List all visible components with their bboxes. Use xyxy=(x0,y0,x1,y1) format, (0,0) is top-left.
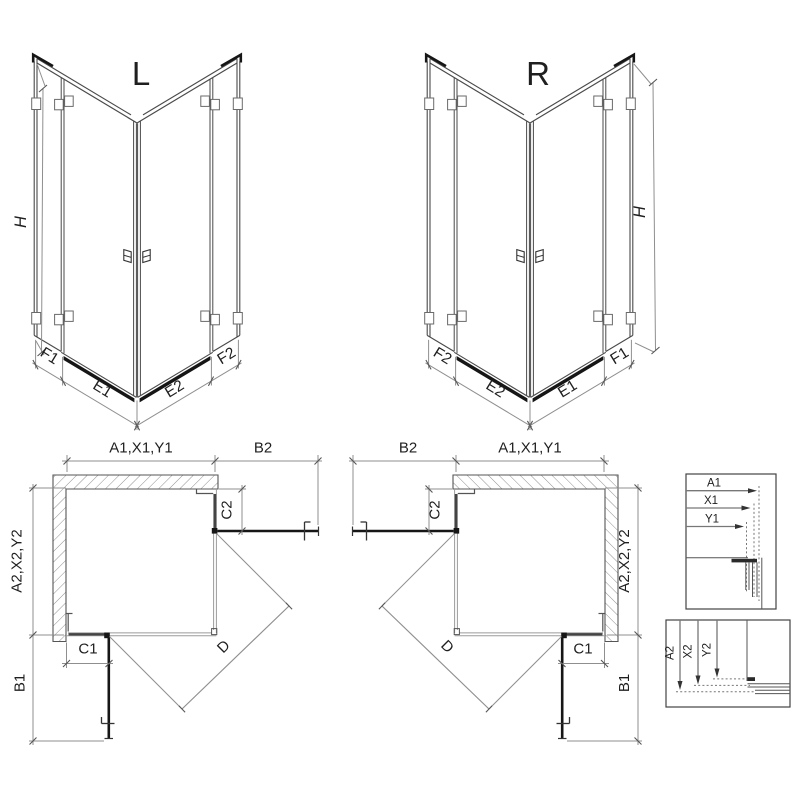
detail-box-width: A1 X1 Y1 xyxy=(686,474,776,609)
label-width-top: A1,X1,Y1 xyxy=(109,440,172,457)
view-title-right: R xyxy=(526,55,550,92)
label-y1: Y1 xyxy=(705,513,719,525)
plan-view-left: A1,X1,Y1 B2 C2 A2,X2,Y2 C1 B1 D xyxy=(9,440,323,746)
profile-bar xyxy=(748,677,756,681)
height-dim-line xyxy=(42,88,44,352)
label-fixed-front: C1 xyxy=(78,641,97,658)
arrow-down-icon xyxy=(678,681,683,690)
detail-frame xyxy=(686,474,776,609)
label-door-open-front: B1 xyxy=(12,674,29,692)
label-x1: X1 xyxy=(704,495,718,507)
label-door-left: E2 xyxy=(483,377,508,401)
label-door-open-side: B2 xyxy=(399,440,417,457)
label-door-open-side: B2 xyxy=(254,440,272,457)
label-fixed-side: C2 xyxy=(427,500,444,519)
label-fixed-side: C2 xyxy=(219,500,236,519)
label-diagonal: D xyxy=(214,637,234,657)
label-x2: X2 xyxy=(683,644,695,658)
label-door-open-front: B1 xyxy=(616,674,633,692)
detail-box-depth: A2 X2 Y2 xyxy=(665,620,791,707)
arrow-down-icon xyxy=(696,676,701,685)
label-depth-side: A2,X2,Y2 xyxy=(9,529,26,592)
label-panel-left: F1 xyxy=(37,344,61,368)
height-dim-line xyxy=(653,82,656,350)
label-height: H xyxy=(12,216,30,228)
iso-view-right: R H F2 E2 E1 F1 xyxy=(425,55,660,431)
label-depth-side: A2,X2,Y2 xyxy=(616,529,633,592)
iso-view-left: L H F1 E1 E2 F2 xyxy=(12,55,242,431)
label-width-top: A1,X1,Y1 xyxy=(498,440,561,457)
label-panel-left: F2 xyxy=(430,344,454,368)
plan-view-right: B2 A1,X1,Y1 C2 A2,X2,Y2 C1 B1 D xyxy=(349,440,642,746)
arrow-down-icon xyxy=(715,669,720,678)
label-fixed-front: C1 xyxy=(573,641,592,658)
label-height: H xyxy=(631,206,649,218)
label-door-left: E1 xyxy=(90,377,115,401)
technical-drawing: L H F1 E1 E2 F2 R H F2 E2 E1 F1 A1,X1,Y1… xyxy=(0,0,800,800)
label-a1: A1 xyxy=(707,478,721,490)
arrow-right-icon xyxy=(742,506,751,511)
profile-bar xyxy=(732,559,758,563)
label-a2: A2 xyxy=(665,646,677,660)
arrow-right-icon xyxy=(748,488,757,493)
label-y2: Y2 xyxy=(702,643,714,657)
arrow-right-icon xyxy=(735,524,744,529)
drawing-canvas: L H F1 E1 E2 F2 R H F2 E2 E1 F1 A1,X1,Y1… xyxy=(0,0,800,800)
view-title-left: L xyxy=(132,55,150,92)
label-diagonal: D xyxy=(437,637,457,657)
